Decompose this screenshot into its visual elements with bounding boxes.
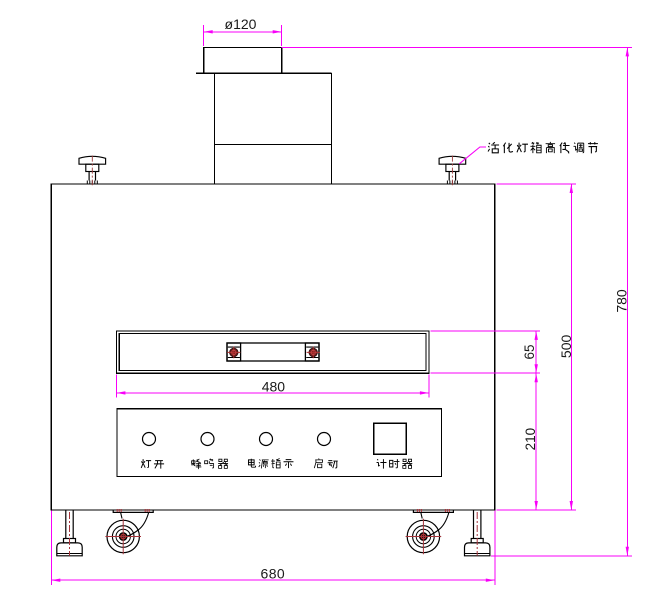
svg-text:480: 480 [262,379,286,395]
svg-text:65: 65 [522,344,537,359]
svg-text:780: 780 [614,289,630,313]
svg-text:680: 680 [261,566,286,582]
svg-text:500: 500 [558,335,574,359]
svg-text:ø120: ø120 [225,16,257,32]
svg-text:210: 210 [523,428,538,451]
